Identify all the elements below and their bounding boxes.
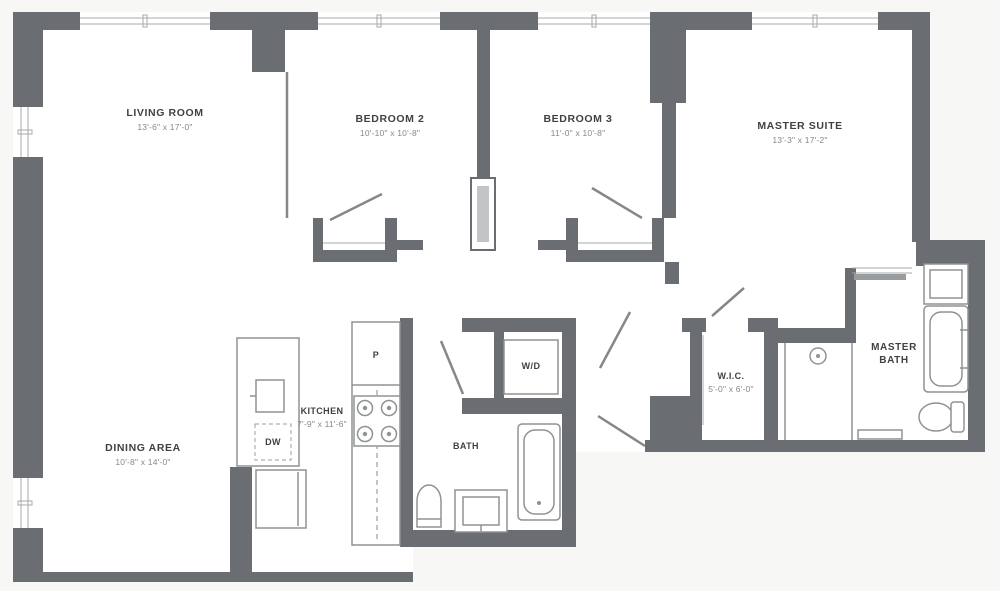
bathtub [518,424,560,520]
window [752,12,878,30]
dishwasher-label: DW [265,437,281,449]
pantry-label: P [373,350,379,362]
wic-label: W.I.C. 5'-0" x 6'-0" [708,371,753,395]
pocket-chase [471,178,495,250]
master-suite-label: MASTER SUITE 13'-3" x 17'-2" [757,120,842,146]
master-bathtub [924,306,968,392]
stove [354,396,400,446]
floor-plan: LIVING ROOM 13'-6" x 17'-0" BEDROOM 2 10… [0,0,1000,591]
bath-vanity [455,490,507,533]
window [80,12,210,30]
bedroom3-label: BEDROOM 3 11'-0" x 10'-8" [544,113,613,139]
floor-plan-drawing [0,0,1000,591]
dining-area-label: DINING AREA 10'-8" x 14'-0" [105,442,181,468]
kitchen-label: KITCHEN 7'-9" x 11'-6" [297,406,347,430]
living-room-label: LIVING ROOM 13'-6" x 17'-0" [126,107,203,133]
window [538,12,650,30]
master-bath-vanity [924,264,968,304]
window [13,107,43,157]
refrigerator [256,470,306,528]
window [13,478,43,528]
master-toilet [919,402,964,432]
master-bath-label: MASTER BATH [861,341,927,367]
window [318,12,440,30]
bedroom2-label: BEDROOM 2 10'-10" x 10'-8" [356,113,425,139]
washer-dryer-label: W/D [522,361,541,373]
bath-label: BATH [453,441,479,453]
